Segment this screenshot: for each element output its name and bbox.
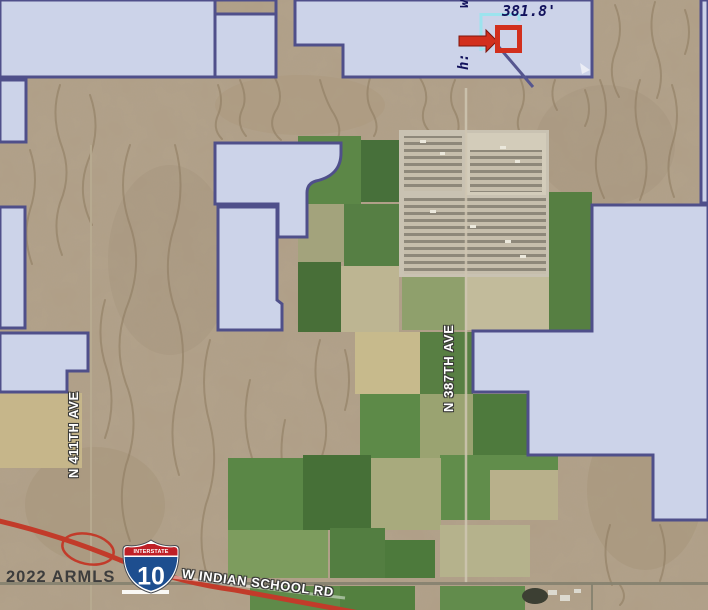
parcel-overlay[interactable] — [701, 0, 708, 203]
map-viewport[interactable]: 381.8' w: h: N 387TH AVE N 411TH AVE W I… — [0, 0, 708, 610]
interstate-10-shield: INTERSTATE 10 — [121, 539, 181, 595]
road-label-411th-ave: N 411TH AVE — [66, 390, 82, 478]
parcel-overlay[interactable] — [0, 0, 215, 77]
parcel-overlay[interactable] — [0, 207, 25, 328]
shield-route-number: 10 — [137, 563, 165, 591]
measurement-value: 381.8' — [502, 2, 556, 20]
measurement-height-label: h: — [456, 46, 470, 70]
parcel-overlay[interactable] — [215, 14, 276, 77]
road-label-387th-ave: N 387TH AVE — [441, 316, 457, 412]
armls-attribution: 2022 ARMLS — [6, 568, 115, 587]
shield-banner-label: INTERSTATE — [133, 549, 168, 555]
map-canvas — [0, 0, 708, 610]
parcel-overlay[interactable] — [218, 207, 282, 330]
parcel-overlay[interactable] — [0, 80, 26, 142]
measurement-width-label: w: — [456, 0, 470, 8]
feedlot-complex — [399, 130, 549, 330]
